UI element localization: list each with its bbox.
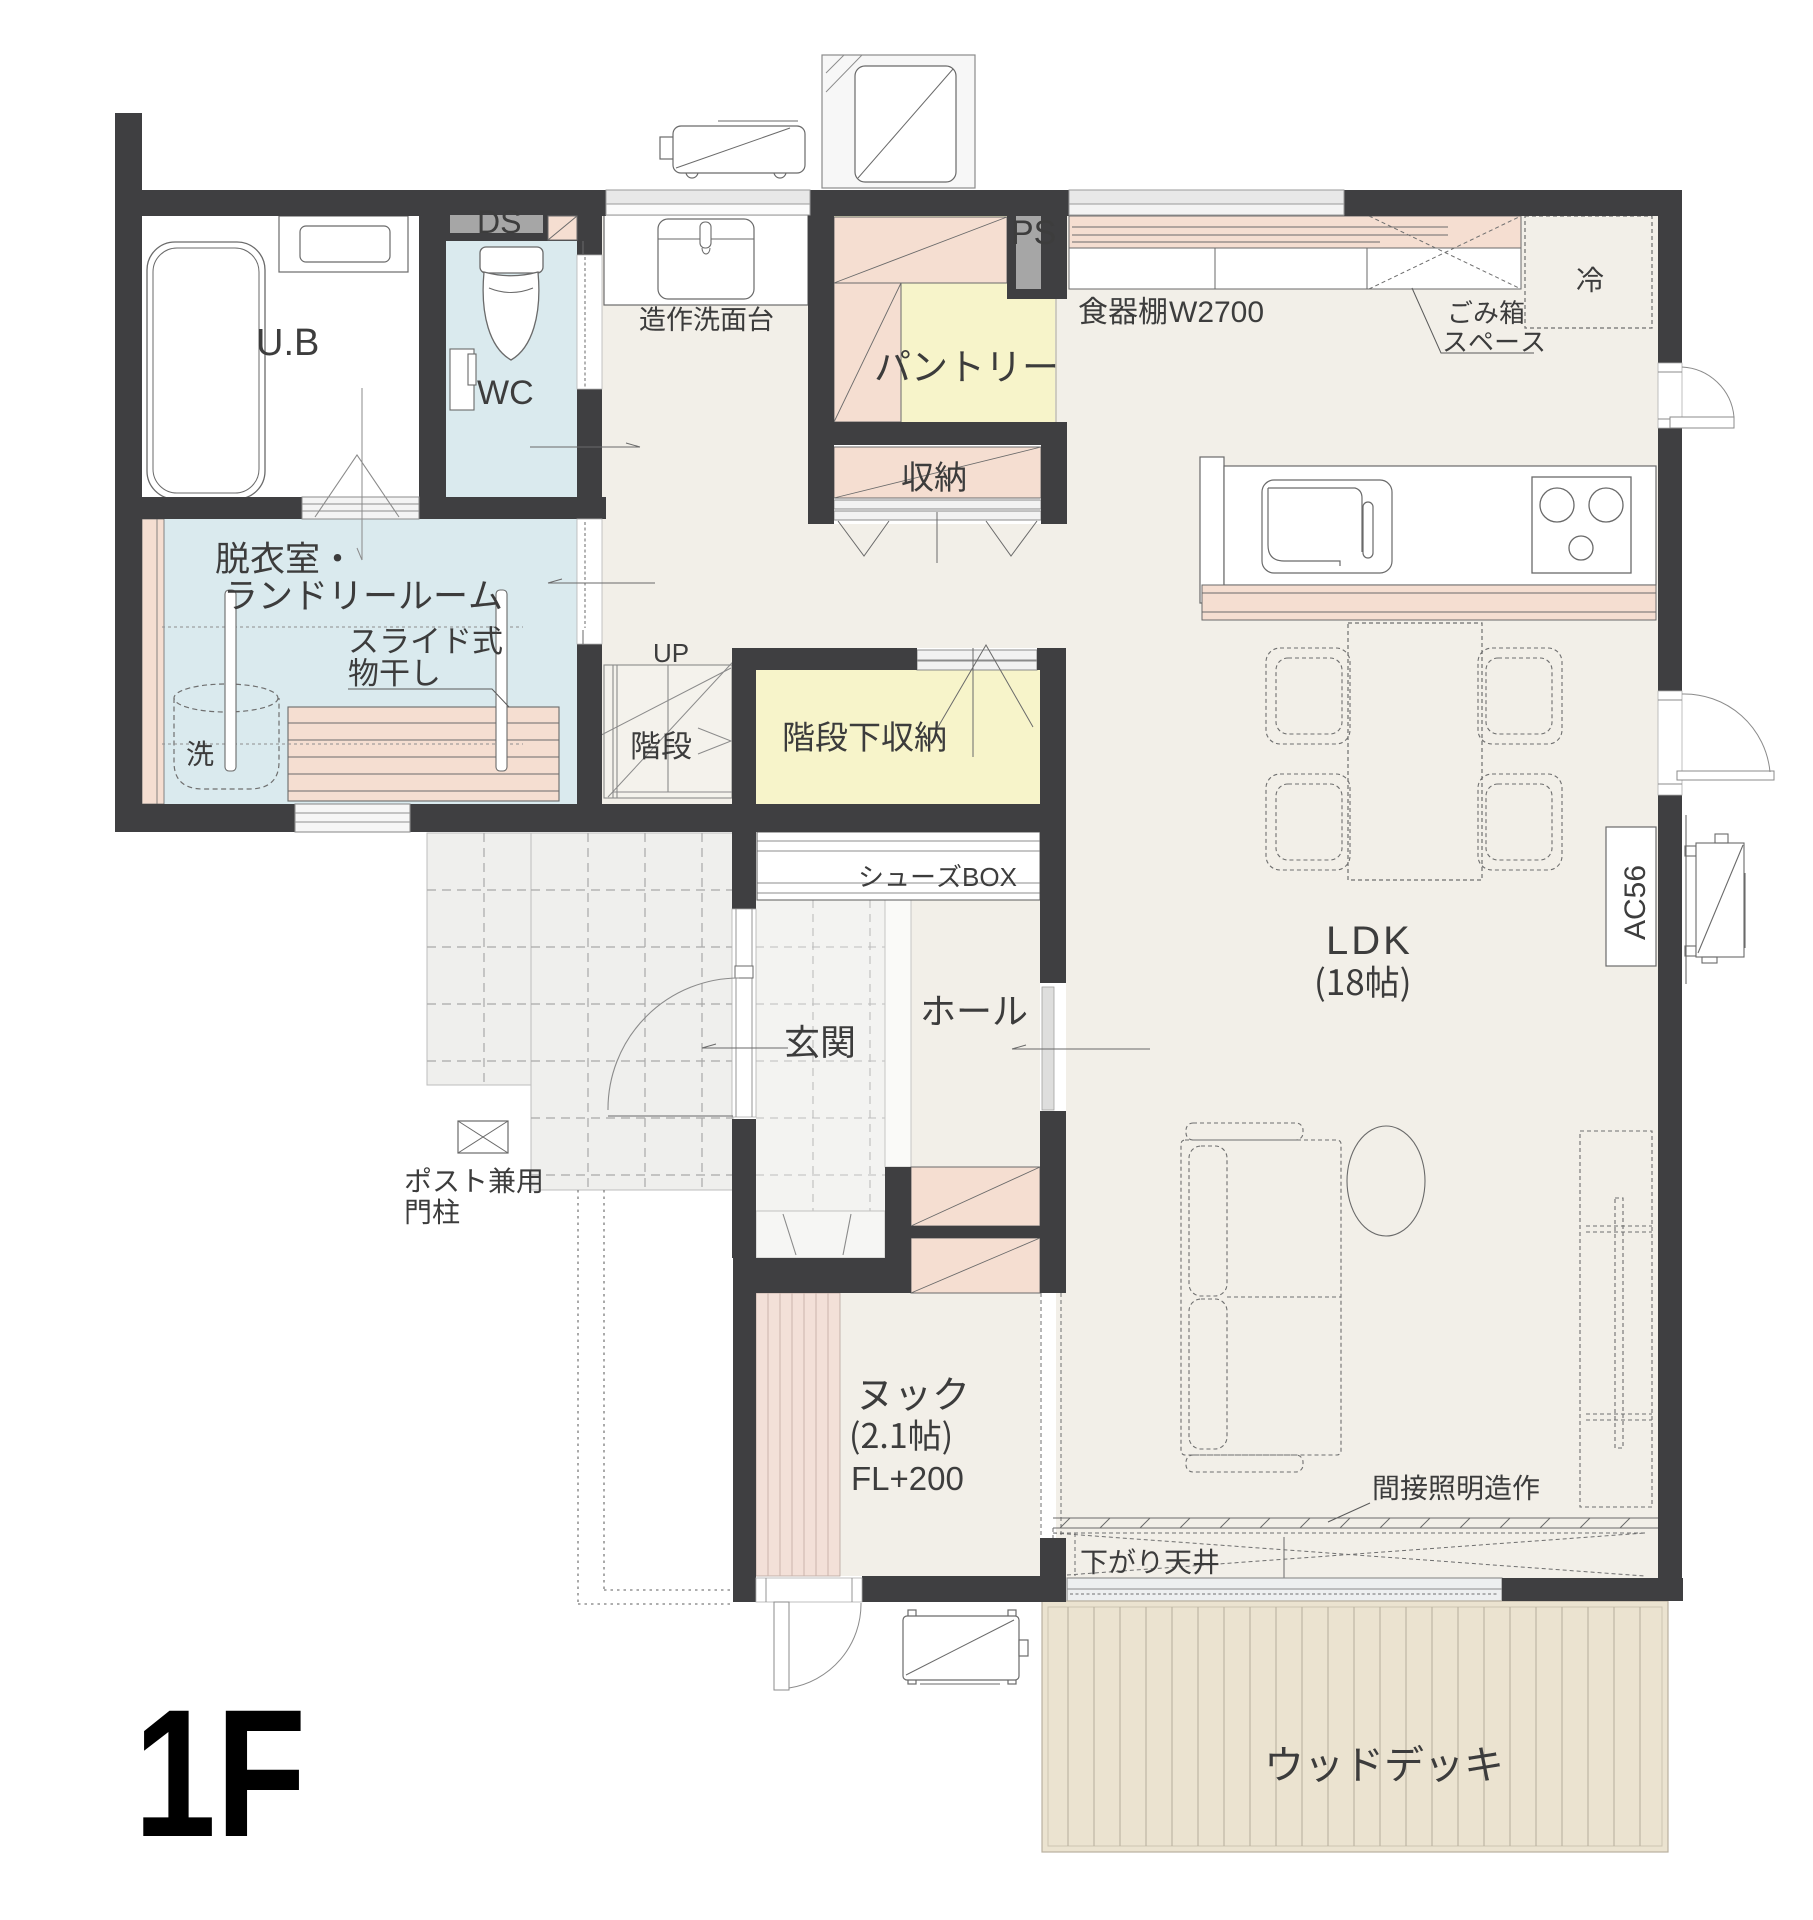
svg-text:DS: DS — [477, 204, 521, 240]
svg-text:BOX: BOX — [962, 862, 1017, 892]
svg-text:1F: 1F — [134, 1671, 306, 1875]
svg-text:UP: UP — [653, 638, 689, 668]
svg-text:U.B: U.B — [256, 322, 319, 364]
svg-text:FL+200: FL+200 — [851, 1460, 964, 1497]
svg-text:PS: PS — [1011, 214, 1056, 252]
svg-text:LDK: LDK — [1326, 919, 1413, 963]
svg-text:W2700: W2700 — [1169, 296, 1264, 329]
svg-text:AC56: AC56 — [1619, 865, 1652, 940]
svg-text:WC: WC — [477, 374, 534, 412]
